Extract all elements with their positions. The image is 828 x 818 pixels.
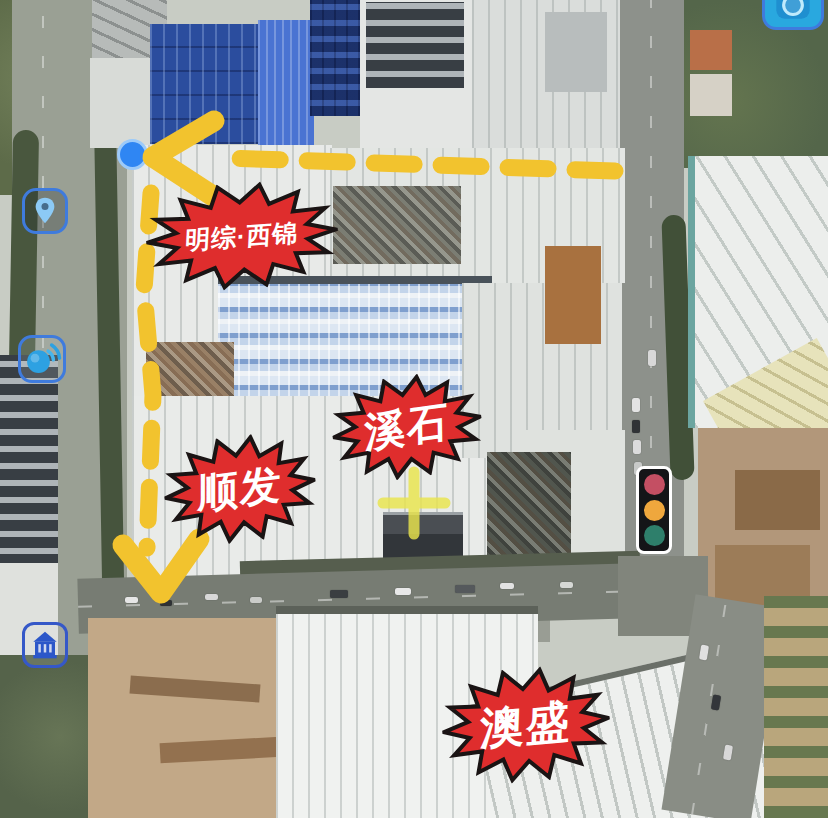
map-region-greenhouse-rows [764,596,828,818]
vehicle [160,600,172,606]
building-poi[interactable] [22,622,68,668]
map-region-brown-patch [545,246,601,344]
traffic-light-icon[interactable] [636,466,672,554]
satellite-map: 明综·西锦 溪石 顺发 澳盛 [0,0,828,818]
map-region-storage-yard [333,186,461,264]
vehicle [455,585,475,593]
vehicle [125,597,138,603]
burst-text: 澳盛 [479,699,572,751]
map-region-tan-building1 [690,30,732,70]
burst-label-shunfa[interactable]: 顺发 [158,427,322,551]
location-pin-poi[interactable] [22,188,68,234]
map-region-dirt-bottomleft [88,618,300,818]
map-region-building-west [0,355,58,565]
map-region-grey-block-top [545,12,607,92]
map-region-solar-rows [366,2,464,88]
voice-signal-poi[interactable] [18,335,66,383]
vehicle [330,590,348,598]
vehicle [250,597,262,603]
traffic-light-green [644,525,665,546]
traffic-light-yellow [644,500,665,521]
building-icon [25,625,65,665]
voice-signal-icon [21,338,63,380]
vehicle [633,440,641,454]
blue-dot-marker[interactable] [117,139,148,170]
vehicle [632,398,640,412]
burst-label-aosheng[interactable]: 澳盛 [437,661,614,789]
burst-text: 顺发 [197,463,282,515]
burst-text: 溪石 [364,400,450,453]
map-region-blue-factory-panels [310,0,362,116]
burst-label-xishi[interactable]: 溪石 [326,366,489,488]
camera-poi[interactable] [762,0,824,30]
traffic-light-red [644,474,665,495]
map-region-blue-factory-light [258,20,314,146]
camera-icon [768,0,818,27]
vehicle [500,583,514,589]
vehicle [395,588,411,595]
location-pin-icon [25,191,65,231]
vehicle [560,582,573,588]
map-region-blue-factory [150,24,262,144]
map-region-dirt-right-junk [735,470,820,530]
vehicle [648,350,656,366]
map-region-greenery-bottomleft [0,655,100,818]
map-region-tan-building2 [690,74,732,116]
map-region-sheds-topleft2 [90,58,152,148]
vehicle [205,594,218,600]
vehicle [632,420,640,433]
burst-label-mingzong-xijin[interactable]: 明综·西锦 [143,176,342,295]
